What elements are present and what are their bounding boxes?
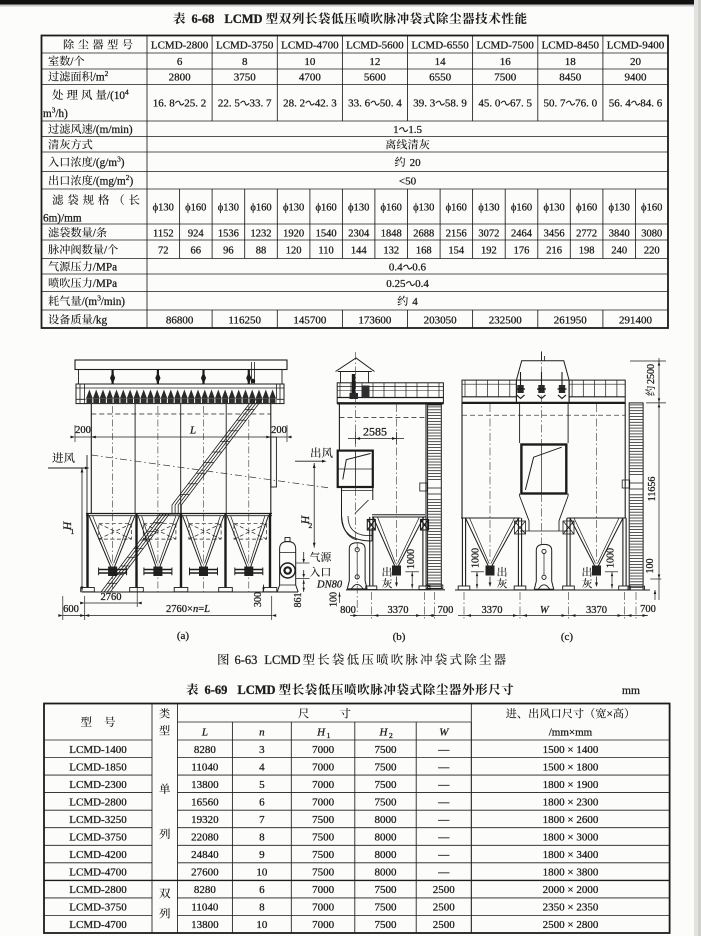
- svg-text:LCMD-3750: LCMD-3750: [216, 40, 274, 52]
- svg-text:ϕ160: ϕ160: [185, 203, 206, 214]
- svg-text:2500: 2500: [646, 364, 657, 384]
- svg-text:168: 168: [416, 246, 432, 257]
- svg-text:19320: 19320: [191, 814, 219, 826]
- svg-text:33. 6: 33. 6: [348, 98, 371, 110]
- svg-text:2500: 2500: [433, 902, 456, 914]
- svg-text:20: 20: [630, 56, 642, 68]
- svg-text:300: 300: [253, 592, 264, 607]
- svg-text:7500: 7500: [312, 832, 335, 844]
- svg-text:(b): (b): [393, 631, 406, 643]
- svg-text:10: 10: [304, 56, 316, 68]
- svg-text:18: 18: [565, 56, 577, 68]
- svg-text:10: 10: [256, 867, 268, 879]
- svg-text:1800 × 3400: 1800 × 3400: [543, 849, 599, 861]
- svg-text:<50: <50: [399, 176, 417, 188]
- svg-text:LCMD-1850: LCMD-1850: [69, 761, 127, 773]
- svg-text:2156: 2156: [446, 229, 467, 240]
- svg-text:291400: 291400: [619, 315, 653, 327]
- svg-text:0.6: 0.6: [412, 262, 426, 274]
- svg-text:2500: 2500: [433, 884, 456, 896]
- svg-text:200: 200: [75, 425, 91, 436]
- svg-text:1800 × 1900: 1800 × 1900: [543, 779, 599, 791]
- svg-text:/(mg/m: /(mg/m: [93, 176, 126, 188]
- svg-text:132: 132: [383, 246, 399, 257]
- svg-text:3072: 3072: [478, 229, 499, 240]
- svg-text:7000: 7000: [312, 779, 335, 791]
- svg-text:LCMD-7500: LCMD-7500: [476, 40, 534, 52]
- svg-text:×: ×: [607, 709, 613, 721]
- svg-text:/mm×mm: /mm×mm: [549, 727, 593, 739]
- svg-text:924: 924: [188, 229, 205, 240]
- svg-text:200: 200: [271, 425, 287, 436]
- svg-text:220: 220: [644, 246, 660, 257]
- svg-text:LCMD-3750: LCMD-3750: [69, 902, 127, 914]
- svg-text:1540: 1540: [316, 229, 337, 240]
- svg-text:7500: 7500: [375, 796, 398, 808]
- svg-text:8280: 8280: [194, 884, 217, 896]
- svg-text:145700: 145700: [293, 315, 327, 327]
- svg-text:1800 × 3000: 1800 × 3000: [543, 832, 599, 844]
- svg-text:1: 1: [393, 124, 399, 136]
- svg-text:2000 × 2000: 2000 × 2000: [543, 884, 599, 896]
- svg-text:7500: 7500: [375, 744, 398, 756]
- svg-text:7000: 7000: [312, 884, 335, 896]
- svg-text:28. 2: 28. 2: [283, 98, 305, 110]
- svg-text:216: 216: [546, 246, 562, 257]
- svg-text:144: 144: [351, 246, 368, 257]
- svg-text:6550: 6550: [429, 72, 452, 84]
- svg-text:/min): /min): [101, 296, 126, 308]
- svg-text:25. 2: 25. 2: [184, 98, 206, 110]
- svg-text:7000: 7000: [312, 796, 335, 808]
- svg-text:LCMD-4700: LCMD-4700: [281, 40, 339, 52]
- svg-text:6: 6: [177, 56, 183, 68]
- svg-text:8: 8: [242, 56, 248, 68]
- svg-text:6-69: 6-69: [205, 683, 228, 697]
- svg-text:800: 800: [340, 605, 356, 616]
- svg-text:8280: 8280: [194, 744, 217, 756]
- svg-text:24840: 24840: [191, 849, 219, 861]
- svg-text:261950: 261950: [554, 315, 588, 327]
- svg-text:/(m/min): /(m/min): [93, 124, 133, 136]
- svg-text:88: 88: [256, 246, 267, 257]
- svg-text:700: 700: [640, 604, 656, 615]
- svg-text:H: H: [316, 727, 326, 739]
- svg-text:ϕ160: ϕ160: [315, 203, 336, 214]
- svg-text:6: 6: [259, 884, 265, 896]
- svg-text:7500: 7500: [375, 779, 398, 791]
- svg-text:8: 8: [259, 902, 265, 914]
- svg-text:1.5: 1.5: [408, 124, 422, 136]
- svg-text:86800: 86800: [166, 315, 194, 327]
- svg-text:42. 3: 42. 3: [315, 98, 338, 110]
- svg-text:ϕ130: ϕ130: [348, 203, 369, 214]
- svg-text:7000: 7000: [312, 761, 335, 773]
- svg-text:—: —: [437, 761, 450, 773]
- svg-text:7: 7: [259, 814, 265, 826]
- svg-text:8450: 8450: [559, 72, 582, 84]
- svg-text:3370: 3370: [388, 605, 409, 616]
- svg-text:11040: 11040: [191, 761, 219, 773]
- svg-text:1000: 1000: [470, 548, 481, 568]
- svg-text:4700: 4700: [299, 72, 322, 84]
- svg-text:76. 0: 76. 0: [575, 98, 598, 110]
- svg-text:LCMD: LCMD: [237, 683, 275, 697]
- svg-text:2772: 2772: [576, 229, 597, 240]
- svg-text:LCMD-5600: LCMD-5600: [346, 40, 404, 52]
- svg-text:W: W: [439, 727, 449, 739]
- svg-text:8: 8: [259, 832, 265, 844]
- svg-text:1800 × 3800: 1800 × 3800: [543, 867, 599, 879]
- svg-text:72: 72: [158, 246, 169, 257]
- svg-text:116250: 116250: [228, 315, 261, 327]
- svg-text:): ): [121, 157, 125, 169]
- svg-text:39. 3: 39. 3: [413, 98, 436, 110]
- svg-text:7000: 7000: [312, 919, 335, 931]
- svg-text:(c): (c): [561, 631, 574, 643]
- svg-text:45. 0: 45. 0: [478, 98, 501, 110]
- svg-text:2500: 2500: [433, 919, 456, 931]
- svg-text:198: 198: [579, 246, 595, 257]
- svg-text:—: —: [437, 744, 450, 756]
- svg-text:192: 192: [481, 246, 497, 257]
- svg-text:W: W: [540, 605, 550, 616]
- svg-text:2760: 2760: [101, 592, 122, 603]
- svg-text:1848: 1848: [381, 229, 402, 240]
- svg-text:ϕ130: ϕ130: [478, 203, 499, 214]
- svg-text:3750: 3750: [234, 72, 257, 84]
- svg-text:2800: 2800: [169, 72, 192, 84]
- svg-text:6m)/mm: 6m)/mm: [43, 213, 82, 225]
- svg-text:LCMD: LCMD: [224, 12, 262, 26]
- svg-text:14: 14: [435, 56, 447, 68]
- svg-text:—: —: [437, 779, 450, 791]
- svg-text:8000: 8000: [375, 849, 398, 861]
- svg-text:67. 5: 67. 5: [510, 98, 533, 110]
- svg-text:ϕ160: ϕ160: [641, 203, 662, 214]
- svg-text:6: 6: [259, 796, 265, 808]
- svg-text:7500: 7500: [312, 867, 335, 879]
- svg-text:2350 × 2350: 2350 × 2350: [543, 902, 599, 914]
- svg-text:LCMD-4700: LCMD-4700: [69, 867, 127, 879]
- svg-text:/MPa: /MPa: [93, 262, 117, 274]
- svg-text:7000: 7000: [312, 744, 335, 756]
- svg-text:2464: 2464: [511, 229, 533, 240]
- svg-text:50. 7: 50. 7: [544, 98, 567, 110]
- svg-text:2760×: 2760×: [166, 604, 193, 615]
- svg-text:LCMD-2800: LCMD-2800: [69, 796, 127, 808]
- svg-text:ϕ130: ϕ130: [153, 203, 174, 214]
- svg-text:1: 1: [71, 527, 75, 536]
- svg-text:11040: 11040: [191, 902, 219, 914]
- svg-text:LCMD-3250: LCMD-3250: [69, 814, 127, 826]
- svg-text:3840: 3840: [609, 229, 630, 240]
- svg-text:2688: 2688: [413, 229, 434, 240]
- svg-text:20: 20: [410, 157, 422, 169]
- svg-text:LCMD-4200: LCMD-4200: [69, 849, 127, 861]
- svg-text:—: —: [437, 814, 450, 826]
- svg-text:7500: 7500: [312, 814, 335, 826]
- svg-text:1000: 1000: [605, 548, 616, 568]
- svg-text:n: n: [259, 727, 265, 739]
- svg-text:7500: 7500: [375, 761, 398, 773]
- svg-text:1920: 1920: [283, 229, 304, 240]
- svg-text:7500: 7500: [375, 919, 398, 931]
- svg-text:LCMD-8450: LCMD-8450: [542, 40, 600, 52]
- svg-text:176: 176: [514, 246, 530, 257]
- svg-text:/m: /m: [93, 72, 105, 84]
- svg-text:1232: 1232: [251, 229, 272, 240]
- svg-text:16. 8: 16. 8: [153, 98, 176, 110]
- svg-text:LCMD: LCMD: [264, 653, 300, 667]
- svg-text:7500: 7500: [494, 72, 517, 84]
- svg-text:110: 110: [318, 246, 333, 257]
- svg-text:8000: 8000: [375, 832, 398, 844]
- svg-text:7500: 7500: [375, 884, 398, 896]
- svg-text:700: 700: [438, 605, 454, 616]
- svg-text:58. 9: 58. 9: [445, 98, 468, 110]
- svg-text:84. 6: 84. 6: [640, 98, 663, 110]
- svg-text:240: 240: [611, 246, 627, 257]
- svg-text:LCMD-2300: LCMD-2300: [69, 779, 127, 791]
- svg-text:3370: 3370: [586, 605, 607, 616]
- svg-text:33. 7: 33. 7: [250, 98, 273, 110]
- svg-text:—: —: [437, 849, 450, 861]
- svg-text:154: 154: [448, 246, 465, 257]
- svg-text:2: 2: [105, 69, 109, 78]
- svg-text:ϕ130: ϕ130: [413, 203, 434, 214]
- svg-text:4: 4: [259, 761, 265, 773]
- svg-text:50. 4: 50. 4: [380, 98, 403, 110]
- svg-text:2: 2: [309, 521, 313, 530]
- svg-text:ϕ160: ϕ160: [446, 203, 467, 214]
- svg-text:3456: 3456: [544, 229, 565, 240]
- svg-text:16560: 16560: [191, 796, 219, 808]
- svg-text:861: 861: [293, 593, 304, 608]
- svg-text:7500: 7500: [312, 849, 335, 861]
- svg-text:—: —: [437, 867, 450, 879]
- svg-text:13800: 13800: [191, 919, 219, 931]
- svg-text:1000: 1000: [406, 549, 417, 569]
- svg-text:600: 600: [63, 604, 79, 615]
- svg-text:/h): /h): [55, 108, 68, 120]
- svg-text:203050: 203050: [424, 315, 458, 327]
- svg-text:1800 × 2300: 1800 × 2300: [543, 796, 599, 808]
- svg-text:9400: 9400: [625, 72, 648, 84]
- svg-text:4: 4: [125, 88, 129, 97]
- svg-text:2500 × 2800: 2500 × 2800: [543, 919, 599, 931]
- svg-text:LCMD-4700: LCMD-4700: [69, 919, 127, 931]
- svg-text:0.25: 0.25: [386, 278, 406, 290]
- svg-text:L: L: [203, 604, 210, 615]
- svg-text:22080: 22080: [191, 832, 219, 844]
- svg-text:(a): (a): [177, 630, 190, 642]
- svg-text:12: 12: [369, 56, 380, 68]
- svg-text:9: 9: [259, 849, 265, 861]
- svg-text:1500 × 1400: 1500 × 1400: [543, 744, 599, 756]
- svg-text:ϕ130: ϕ130: [609, 203, 630, 214]
- svg-text:96: 96: [223, 246, 234, 257]
- svg-text:10: 10: [256, 919, 268, 931]
- svg-text:100: 100: [645, 559, 656, 574]
- svg-text:8000: 8000: [375, 867, 398, 879]
- svg-text:/MPa: /MPa: [93, 278, 117, 290]
- svg-text:1536: 1536: [218, 229, 239, 240]
- svg-text:/(g/m: /(g/m: [93, 157, 118, 169]
- svg-text:16: 16: [500, 56, 512, 68]
- svg-text:3: 3: [259, 744, 265, 756]
- svg-text:mm: mm: [622, 685, 640, 697]
- svg-text:LCMD-2800: LCMD-2800: [151, 40, 209, 52]
- svg-text:1800 × 2600: 1800 × 2600: [543, 814, 599, 826]
- svg-text:4: 4: [412, 296, 418, 308]
- svg-text:ϕ130: ϕ130: [543, 203, 564, 214]
- svg-text:6-63: 6-63: [235, 653, 258, 667]
- svg-text:LCMD-3750: LCMD-3750: [69, 832, 127, 844]
- svg-text:5600: 5600: [364, 72, 387, 84]
- svg-text:LCMD-9400: LCMD-9400: [607, 40, 665, 52]
- svg-text:120: 120: [286, 246, 302, 257]
- svg-text:/(10: /(10: [107, 90, 125, 102]
- svg-text:22. 5: 22. 5: [218, 98, 241, 110]
- svg-text:1152: 1152: [153, 229, 174, 240]
- svg-text:L: L: [189, 425, 196, 437]
- svg-text:2: 2: [389, 731, 393, 740]
- svg-text:/kg: /kg: [93, 315, 108, 327]
- svg-text:0.4: 0.4: [389, 262, 403, 274]
- svg-text:27600: 27600: [191, 867, 219, 879]
- svg-text:ϕ160: ϕ160: [381, 203, 402, 214]
- svg-text:6-68: 6-68: [192, 12, 215, 26]
- svg-text:13800: 13800: [191, 779, 219, 791]
- svg-text:LCMD-1400: LCMD-1400: [69, 744, 127, 756]
- svg-text:0.4: 0.4: [415, 278, 429, 290]
- svg-text:L: L: [201, 727, 208, 739]
- svg-text:2585: 2585: [363, 425, 387, 439]
- svg-text:m: m: [43, 108, 52, 120]
- svg-text:2304: 2304: [348, 229, 370, 240]
- svg-text:ϕ160: ϕ160: [511, 203, 532, 214]
- svg-text:LCMD-2800: LCMD-2800: [69, 884, 127, 896]
- svg-text:66: 66: [191, 246, 202, 257]
- svg-text:): ): [130, 176, 134, 188]
- svg-text:1500 × 1800: 1500 × 1800: [543, 761, 599, 773]
- svg-text:/(m: /(m: [82, 296, 98, 308]
- svg-text:173600: 173600: [358, 315, 392, 327]
- svg-text:ϕ160: ϕ160: [576, 203, 597, 214]
- svg-text:5: 5: [259, 779, 265, 791]
- svg-text:7000: 7000: [312, 902, 335, 914]
- svg-text:H: H: [379, 727, 389, 739]
- svg-text:3370: 3370: [482, 605, 503, 616]
- svg-text:3080: 3080: [641, 229, 662, 240]
- svg-text:7500: 7500: [375, 902, 398, 914]
- svg-text:ϕ160: ϕ160: [250, 203, 271, 214]
- svg-text:ϕ130: ϕ130: [218, 203, 239, 214]
- svg-text:ϕ130: ϕ130: [283, 203, 304, 214]
- svg-text:DN80: DN80: [316, 580, 343, 591]
- svg-text:—: —: [437, 832, 450, 844]
- svg-text:56. 4: 56. 4: [609, 98, 632, 110]
- svg-text:100: 100: [328, 592, 339, 607]
- svg-text:—: —: [437, 796, 450, 808]
- svg-text:1: 1: [327, 731, 331, 740]
- svg-text:LCMD-6550: LCMD-6550: [411, 40, 469, 52]
- svg-text:8000: 8000: [375, 814, 398, 826]
- svg-text:232500: 232500: [489, 315, 523, 327]
- svg-text:11656: 11656: [647, 477, 658, 502]
